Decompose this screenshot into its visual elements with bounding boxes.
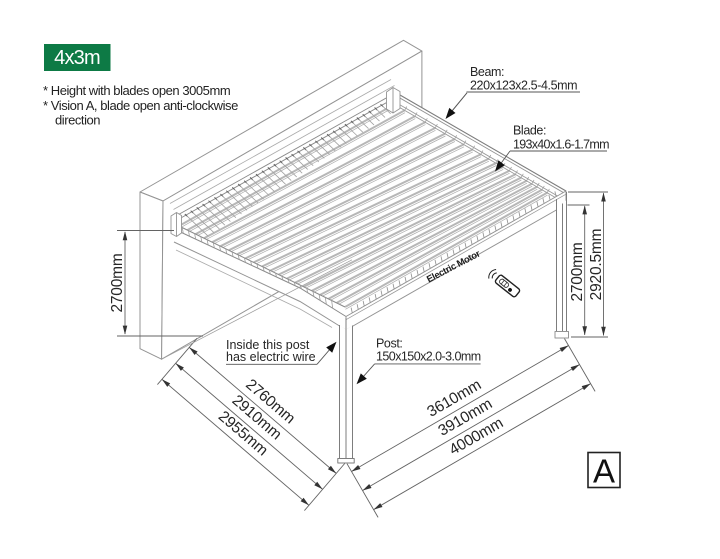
svg-text:has electric wire: has electric wire [226,350,316,364]
svg-text:* Height with blades open 3005: * Height with blades open 3005mm [43,83,230,98]
svg-text:150x150x2.0-3.0mm: 150x150x2.0-3.0mm [376,349,481,363]
svg-text:* Vision A, blade open anti-cl: * Vision A, blade open anti-clockwise [43,98,238,113]
svg-text:Beam:: Beam: [470,65,504,79]
svg-text:4x3m: 4x3m [54,47,100,69]
svg-text:220x123x2.5-4.5mm: 220x123x2.5-4.5mm [470,79,577,93]
svg-text:direction: direction [55,113,100,128]
svg-text:Blade:: Blade: [513,124,546,138]
svg-text:2700mm: 2700mm [109,253,126,312]
svg-text:193x40x1.6-1.7mm: 193x40x1.6-1.7mm [513,138,609,152]
svg-text:2700mm: 2700mm [569,242,586,301]
svg-text:2920.5mm: 2920.5mm [588,229,605,301]
svg-text:A: A [593,453,615,490]
